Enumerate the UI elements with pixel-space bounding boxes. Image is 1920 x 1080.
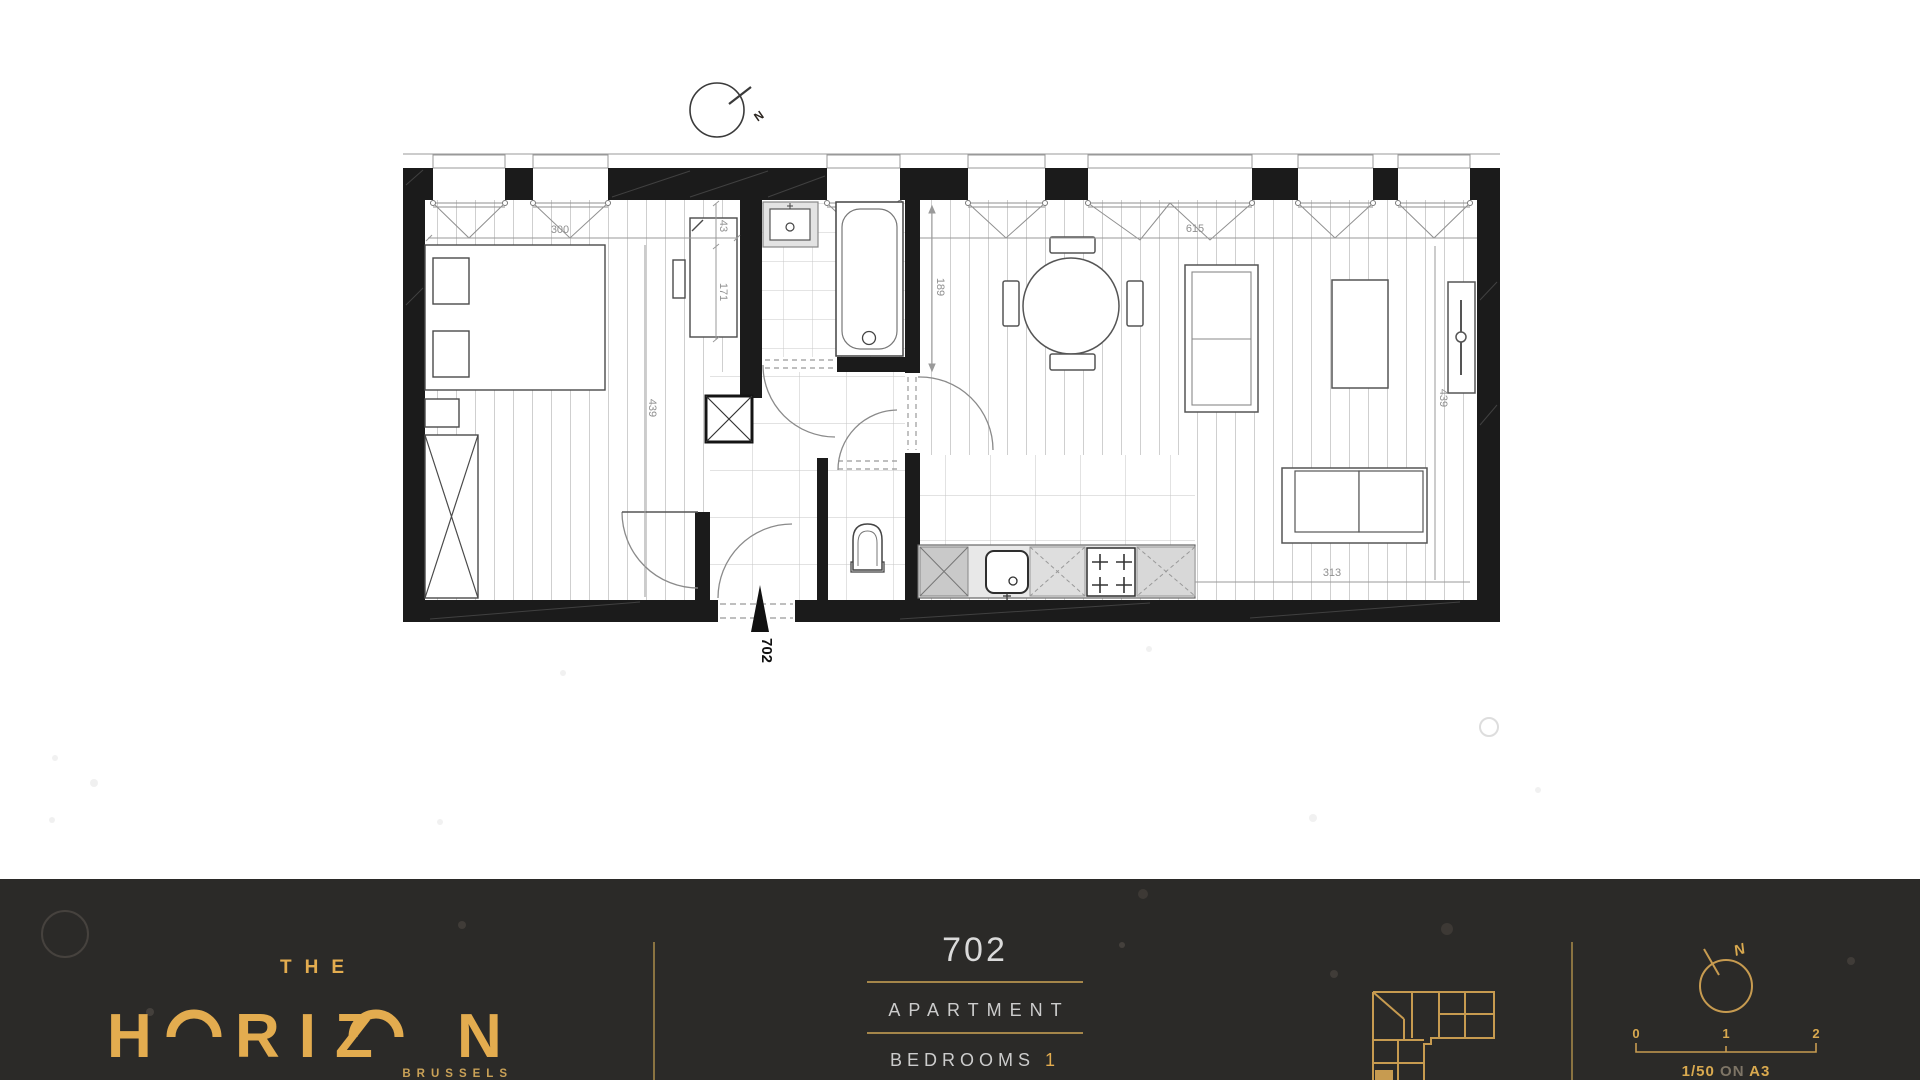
bedrooms-count: 1 bbox=[1045, 1050, 1060, 1070]
unit-number: 702 bbox=[867, 931, 1083, 970]
wall-shelf bbox=[673, 260, 685, 298]
gold-rule bbox=[867, 1032, 1083, 1034]
entry-unit-label: 702 bbox=[758, 638, 775, 663]
dresser bbox=[425, 399, 459, 427]
compass-icon: N bbox=[1690, 935, 1780, 1019]
footer: THE H RIZ N BRUSSELS 702 APARTMENT BEDRO… bbox=[0, 879, 1920, 1080]
stove bbox=[1087, 548, 1135, 596]
pillow bbox=[433, 258, 469, 304]
bokeh-dot bbox=[458, 921, 466, 929]
dim-label: 300 bbox=[551, 224, 569, 236]
footer-divider bbox=[653, 942, 655, 1080]
bedrooms-label: BEDROOMS bbox=[890, 1050, 1035, 1070]
dim-label: 615 bbox=[1186, 223, 1204, 235]
bokeh-dot bbox=[1119, 942, 1125, 948]
page: { "plan": { "north_label": "N", "entry_l… bbox=[0, 0, 1920, 1080]
scale-ratio-line: 1/50 ON A3 bbox=[1628, 1063, 1824, 1080]
footer-divider bbox=[1571, 942, 1573, 1080]
coffee-table bbox=[1332, 280, 1388, 388]
chair bbox=[1050, 354, 1095, 370]
brand-the-label: THE bbox=[105, 957, 519, 979]
horizon-arc-icon bbox=[171, 1014, 217, 1037]
bokeh-dot bbox=[1330, 970, 1338, 978]
chair bbox=[1127, 281, 1143, 326]
brand-city-label: BRUSSELS bbox=[105, 1068, 513, 1080]
bokeh-dot bbox=[1847, 957, 1855, 965]
dim-label: 171 bbox=[717, 283, 729, 301]
dim-label: 189 bbox=[934, 278, 946, 296]
pillow bbox=[433, 331, 469, 377]
bokeh-dot bbox=[1441, 923, 1453, 935]
bokeh-dot bbox=[1138, 889, 1148, 899]
chair bbox=[1003, 281, 1019, 326]
dim-label: 439 bbox=[646, 399, 658, 417]
building-keyplan-icon bbox=[1368, 988, 1498, 1080]
closet-cabinet bbox=[690, 218, 737, 337]
scale-conjunction: ON bbox=[1720, 1063, 1745, 1080]
scale-paper: A3 bbox=[1749, 1063, 1770, 1080]
dining-table bbox=[1023, 258, 1119, 354]
gold-rule bbox=[867, 981, 1083, 983]
dim-label: 313 bbox=[1323, 567, 1341, 579]
scale-numbers: 0 1 2 bbox=[1628, 1026, 1824, 1040]
tub-drain bbox=[863, 332, 876, 345]
chair bbox=[1050, 237, 1095, 253]
bedrooms-line: BEDROOMS 1 bbox=[867, 1050, 1083, 1071]
scale-bar bbox=[1628, 1042, 1824, 1054]
dim-label: 439 bbox=[1437, 389, 1449, 407]
scale-ratio: 1/50 bbox=[1682, 1063, 1715, 1080]
technical-shaft bbox=[706, 396, 752, 442]
bokeh-dot bbox=[41, 910, 89, 958]
scale-tick-label: 2 bbox=[1808, 1026, 1824, 1041]
floor-plan-drawing: N bbox=[0, 0, 1920, 879]
compass-north-label: N bbox=[1732, 940, 1749, 960]
dim-label: 43 bbox=[717, 220, 729, 232]
brand-horizon-wordmark: H RIZ N bbox=[105, 999, 519, 1069]
unit-type-label: APARTMENT bbox=[867, 1000, 1083, 1021]
unit-highlight bbox=[1375, 1070, 1393, 1080]
wordmark-part: N bbox=[457, 1002, 502, 1069]
kitchen-counter bbox=[918, 545, 1195, 600]
scale-tick-label: 0 bbox=[1628, 1026, 1644, 1041]
kitchen-sink bbox=[986, 551, 1028, 593]
floor-plan-sheet: N bbox=[0, 0, 1920, 879]
wordmark-part: H bbox=[107, 1002, 152, 1069]
scale-tick-label: 1 bbox=[1718, 1026, 1734, 1041]
